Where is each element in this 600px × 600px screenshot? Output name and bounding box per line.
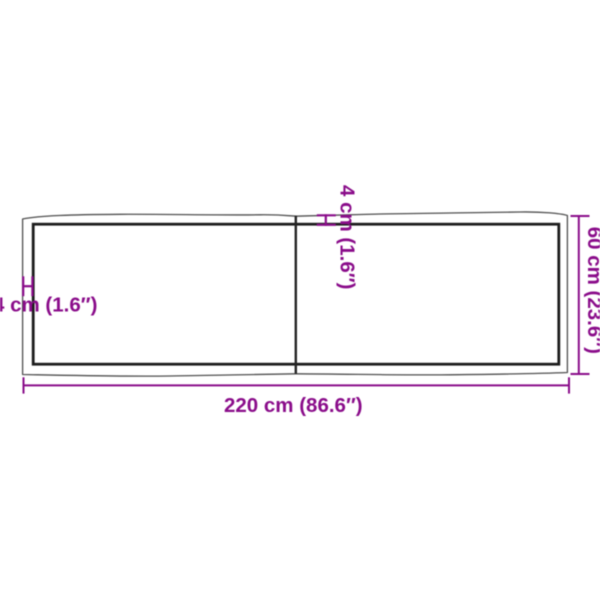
svg-text:4 cm (1.6″): 4 cm (1.6″) [0,293,97,316]
svg-text:4 cm (1.6″): 4 cm (1.6″) [336,185,359,289]
svg-text:220 cm (86.6″): 220 cm (86.6″) [224,394,363,417]
svg-text:60 cm (23.6″): 60 cm (23.6″) [583,227,600,354]
